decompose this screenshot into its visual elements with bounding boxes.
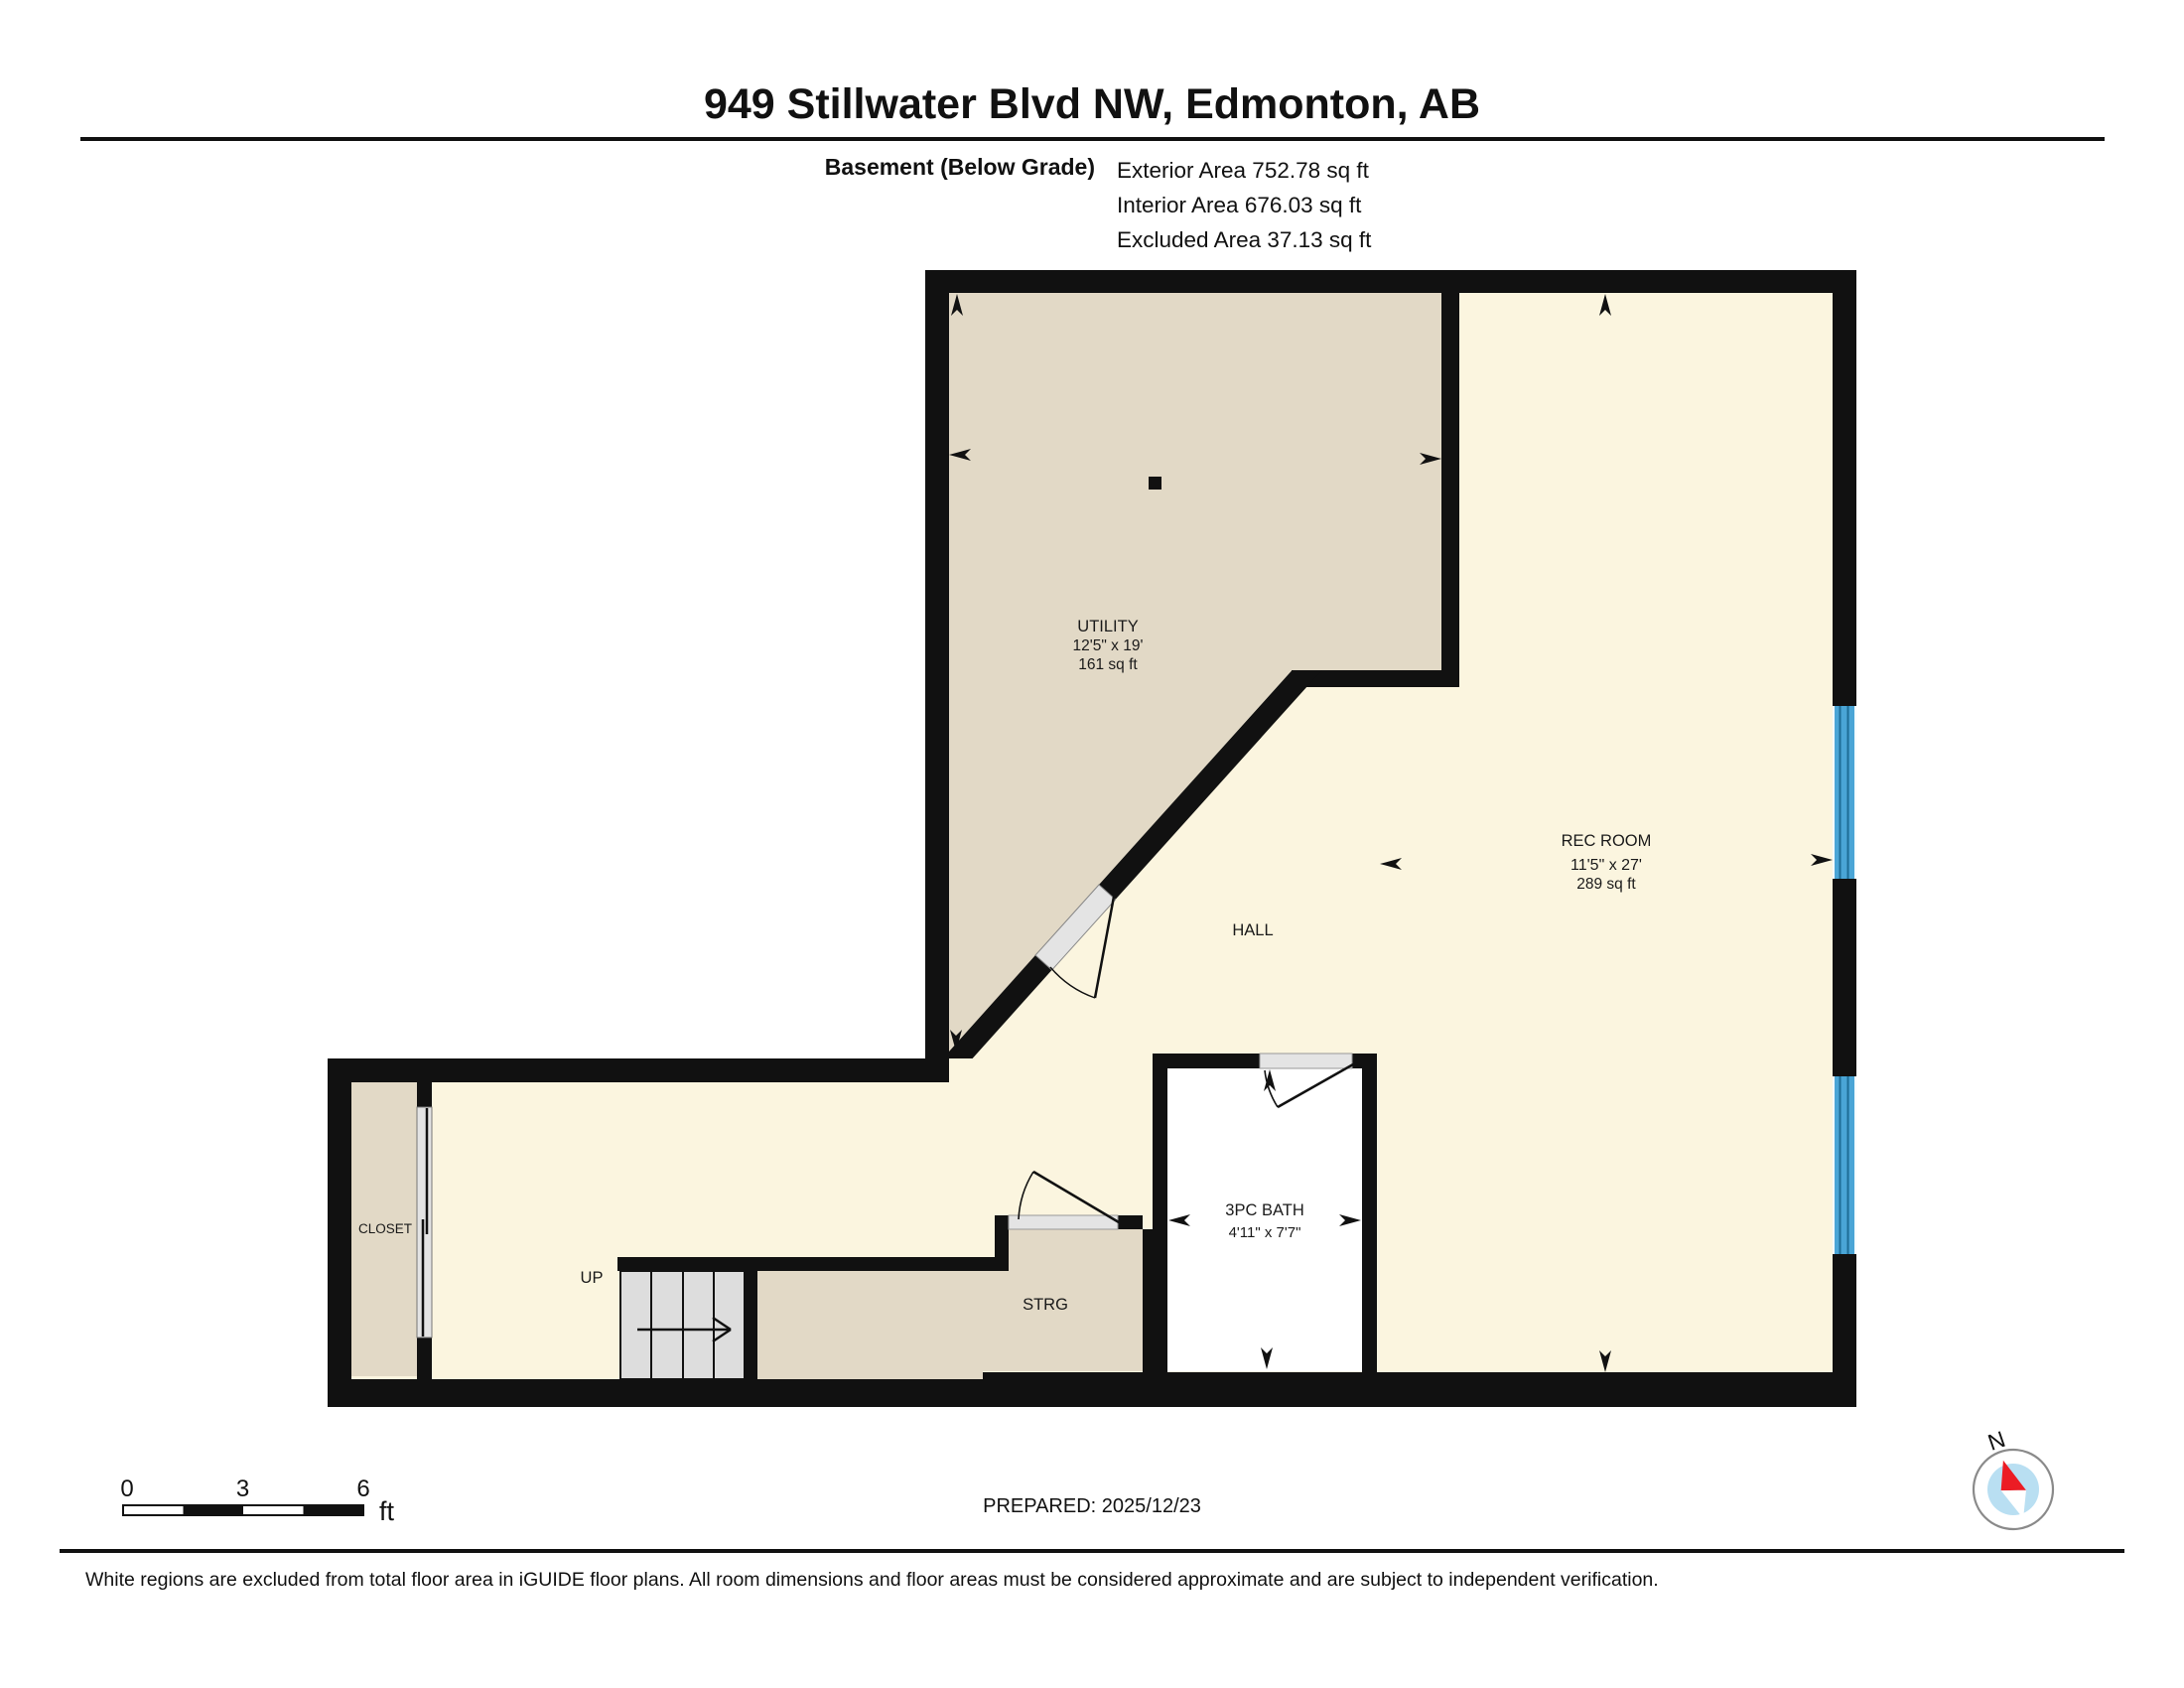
svg-text:UTILITY: UTILITY	[1077, 618, 1138, 635]
svg-text:4'11" x 7'7": 4'11" x 7'7"	[1229, 1224, 1301, 1241]
svg-text:161 sq ft: 161 sq ft	[1078, 656, 1138, 673]
svg-text:11'5" x 27': 11'5" x 27'	[1570, 857, 1642, 874]
svg-text:REC ROOM: REC ROOM	[1562, 832, 1652, 850]
svg-text:289 sq ft: 289 sq ft	[1576, 876, 1636, 893]
svg-text:HALL: HALL	[1232, 921, 1273, 939]
svg-text:3PC BATH: 3PC BATH	[1225, 1201, 1303, 1219]
svg-text:UP: UP	[581, 1269, 604, 1287]
svg-text:STRG: STRG	[1023, 1296, 1068, 1314]
svg-text:12'5" x 19': 12'5" x 19'	[1073, 637, 1144, 654]
svg-text:N: N	[1984, 1426, 2008, 1456]
svg-text:CLOSET: CLOSET	[358, 1221, 412, 1236]
